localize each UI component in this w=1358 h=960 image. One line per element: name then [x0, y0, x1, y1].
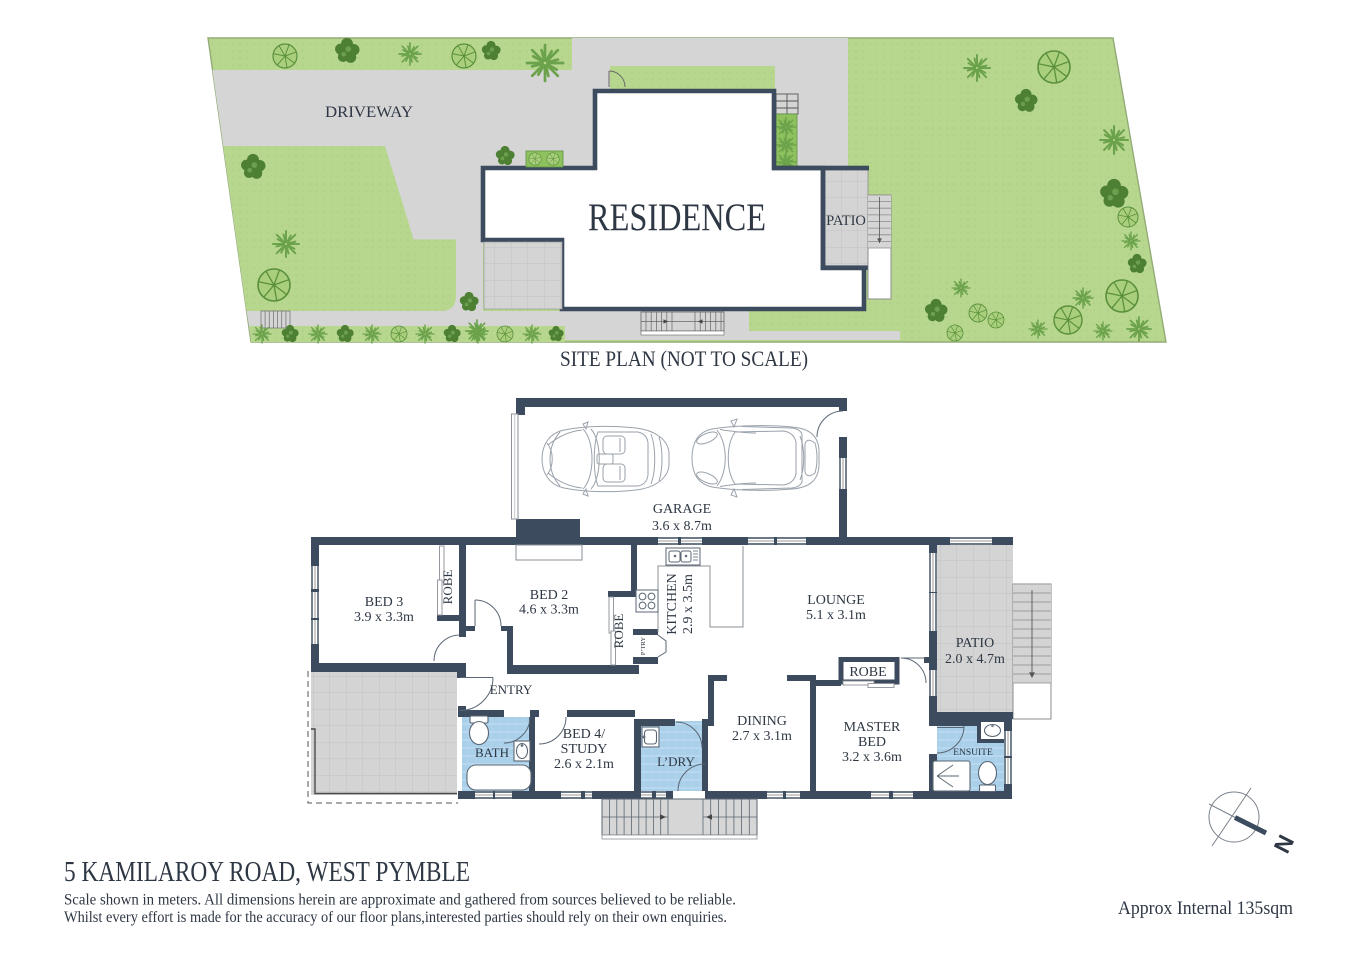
svg-text:2.6 x 2.1m: 2.6 x 2.1m: [554, 757, 614, 772]
svg-text:Whilst every effort is made fo: Whilst every effort is made for the accu…: [64, 909, 727, 926]
svg-text:PATIO: PATIO: [826, 213, 866, 229]
svg-text:KITCHEN: KITCHEN: [665, 573, 680, 634]
svg-text:2.0 x 4.7m: 2.0 x 4.7m: [945, 652, 1005, 667]
svg-text:L’DRY: L’DRY: [657, 754, 695, 769]
svg-text:BED 4/: BED 4/: [563, 727, 606, 742]
svg-text:ENSUITE: ENSUITE: [953, 748, 993, 758]
svg-text:ROBE: ROBE: [440, 570, 455, 605]
svg-text:Scale shown in meters. All dim: Scale shown in meters. All dimensions he…: [64, 892, 736, 909]
svg-text:3.9 x 3.3m: 3.9 x 3.3m: [354, 610, 414, 625]
svg-text:GARAGE: GARAGE: [653, 502, 711, 517]
svg-text:DRIVEWAY: DRIVEWAY: [325, 104, 413, 121]
svg-text:2.9 x 3.5m: 2.9 x 3.5m: [681, 574, 696, 634]
svg-text:BED 2: BED 2: [530, 588, 569, 603]
svg-text:3.2 x 3.6m: 3.2 x 3.6m: [842, 750, 902, 765]
svg-text:BED: BED: [858, 735, 886, 750]
svg-text:4.6 x 3.3m: 4.6 x 3.3m: [519, 603, 579, 618]
svg-text:ENTRY: ENTRY: [490, 682, 533, 697]
svg-text:RESIDENCE: RESIDENCE: [588, 196, 766, 239]
svg-text:Approx Internal 135sqm: Approx Internal 135sqm: [1118, 898, 1294, 919]
svg-text:5.1 x 3.1m: 5.1 x 3.1m: [806, 608, 866, 623]
svg-text:5 KAMILAROY ROAD, WEST PYMBLE: 5 KAMILAROY ROAD, WEST PYMBLE: [64, 857, 470, 888]
svg-text:3.6 x 8.7m: 3.6 x 8.7m: [652, 519, 712, 534]
svg-text:SITE PLAN (NOT TO SCALE): SITE PLAN (NOT TO SCALE): [560, 346, 808, 371]
svg-text:DINING: DINING: [737, 714, 787, 729]
svg-text:LOUNGE: LOUNGE: [807, 593, 865, 608]
svg-text:PATIO: PATIO: [956, 636, 994, 651]
svg-text:MASTER: MASTER: [844, 720, 901, 735]
svg-text:P’TRY: P’TRY: [640, 636, 647, 655]
svg-text:BATH: BATH: [475, 745, 509, 760]
svg-text:BED 3: BED 3: [365, 595, 404, 610]
svg-text:ROBE: ROBE: [611, 614, 626, 649]
svg-text:2.7 x 3.1m: 2.7 x 3.1m: [732, 729, 792, 744]
svg-text:STUDY: STUDY: [561, 742, 608, 757]
svg-text:ROBE: ROBE: [849, 665, 886, 680]
